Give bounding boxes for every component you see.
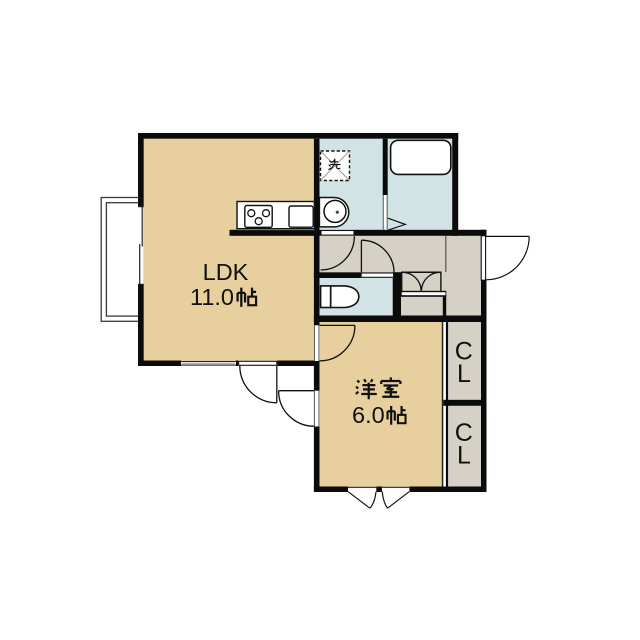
- svg-text:11.0: 11.0: [190, 284, 234, 310]
- svg-text:6.0: 6.0: [352, 402, 385, 428]
- svg-text:L: L: [457, 360, 471, 388]
- svg-text:L: L: [457, 442, 471, 470]
- svg-text:LDK: LDK: [203, 259, 249, 285]
